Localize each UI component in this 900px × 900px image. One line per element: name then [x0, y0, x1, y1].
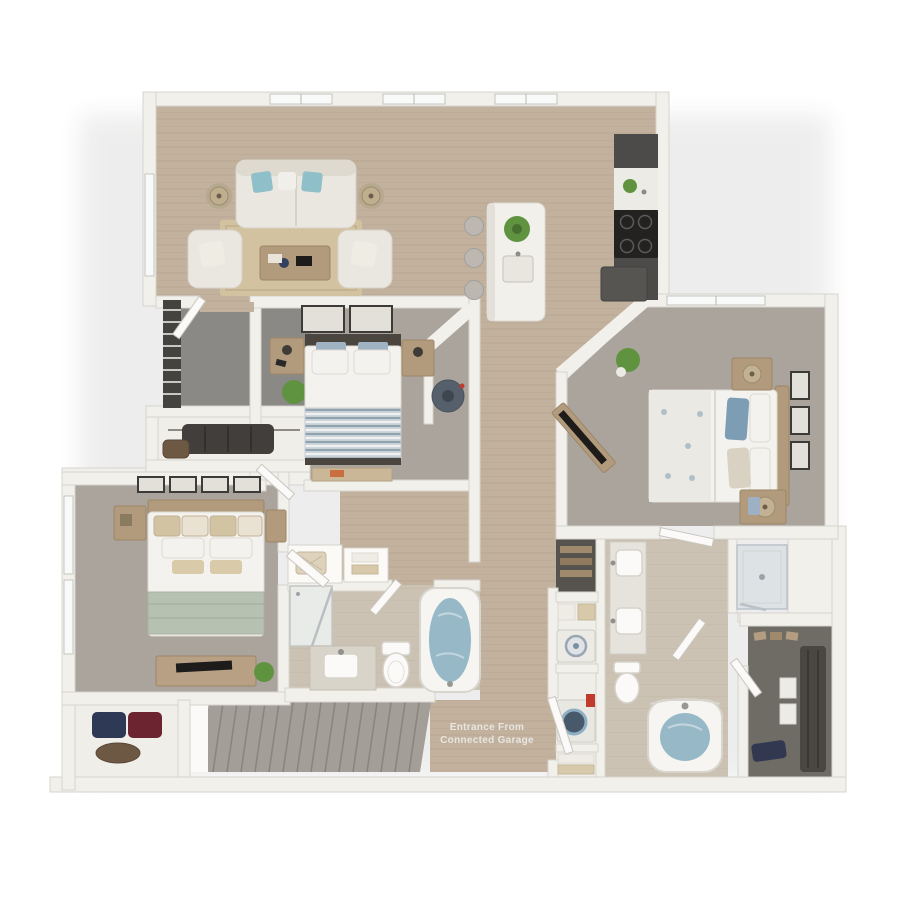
- window-icon: [64, 580, 73, 654]
- shoes: [754, 631, 767, 641]
- island-faucet-icon: [516, 252, 521, 257]
- lamp-icon: [413, 347, 423, 357]
- shoe-shelf: [560, 570, 592, 577]
- wall-art: [350, 306, 392, 332]
- washer: [557, 630, 595, 662]
- floor-plan: Entrance From Connected Garage: [0, 0, 900, 900]
- bed-queen: [305, 334, 401, 465]
- towel-stack: [558, 754, 594, 763]
- cooktop: [614, 210, 658, 258]
- wall-art: [791, 442, 809, 469]
- wall-art: [170, 477, 196, 492]
- stair-gap: [190, 698, 208, 772]
- pillow: [182, 516, 208, 536]
- bar-stool: [465, 281, 484, 300]
- nightstand: [266, 510, 286, 542]
- entrance-label-line2: Connected Garage: [440, 735, 534, 746]
- duffel-bag: [96, 743, 140, 763]
- sink: [324, 654, 358, 678]
- accent-pillow: [210, 560, 242, 574]
- bed-king: [148, 500, 264, 636]
- nightstand: [270, 338, 304, 374]
- towel-stack: [352, 553, 378, 562]
- towel-stack: [558, 604, 575, 620]
- pillow: [354, 350, 390, 374]
- nightstand: [402, 340, 434, 376]
- foot-bench: [312, 468, 392, 481]
- tub-faucet-icon: [447, 681, 453, 687]
- throw-pillow: [198, 240, 226, 268]
- hanging-clothes: [800, 646, 826, 772]
- towel-stack: [352, 565, 378, 574]
- lamp-icon: [282, 345, 292, 355]
- pillow: [238, 516, 262, 536]
- toilet: [614, 662, 640, 703]
- shower: [737, 545, 787, 610]
- decor-tray: [268, 254, 282, 263]
- window-icon: [145, 174, 154, 276]
- counter-plant: [623, 179, 637, 193]
- lamp-icon: [120, 514, 132, 526]
- bar-stool: [465, 217, 484, 236]
- balcony-railing: [163, 300, 181, 408]
- vanity: [310, 646, 376, 690]
- floor-plan-canvas: Entrance From Connected Garage: [0, 0, 900, 900]
- wall-art: [202, 477, 228, 492]
- hanging-clothes: [128, 712, 162, 738]
- striped-duvet: [305, 408, 401, 458]
- shower-head-icon: [296, 592, 300, 596]
- window-icon: [64, 496, 73, 574]
- sink: [616, 550, 642, 576]
- storage-box: [780, 704, 796, 724]
- throw-pillow: [350, 240, 378, 268]
- faucet-icon: [611, 619, 616, 624]
- utility-closet: [432, 380, 465, 412]
- faucet-icon: [338, 649, 344, 655]
- double-vanity: [610, 542, 646, 654]
- bed-king: [649, 386, 789, 506]
- pillow: [210, 538, 252, 558]
- pillow: [750, 448, 770, 496]
- accent-pillow: [725, 397, 750, 440]
- pillow: [750, 394, 770, 442]
- duffel-bag: [163, 440, 189, 458]
- shoes: [786, 631, 799, 641]
- floral-duvet: [649, 390, 711, 502]
- towel-stack: [578, 604, 595, 620]
- bar-stool: [465, 249, 484, 268]
- throw-pillow: [301, 171, 323, 193]
- armchair: [188, 230, 242, 288]
- wall-art: [302, 306, 344, 332]
- potted-plant: [254, 662, 274, 682]
- hanging-clothes: [92, 712, 126, 738]
- wall-art: [791, 372, 809, 399]
- throw-pillow: [251, 171, 274, 194]
- towel-stack: [558, 765, 594, 774]
- wall-art: [791, 407, 809, 434]
- shoe-shelf: [560, 546, 592, 553]
- bathtub: [420, 588, 480, 692]
- entrance-label-line1: Entrance From: [450, 722, 524, 733]
- sofa: [236, 160, 356, 228]
- wall-art: [234, 477, 260, 492]
- footboard: [305, 458, 401, 465]
- kitchen-faucet-icon: [642, 190, 647, 195]
- refrigerator: [601, 267, 647, 301]
- bench-decor: [330, 470, 344, 477]
- headboard: [148, 500, 264, 513]
- pillow: [154, 516, 180, 536]
- balcony-plant: [282, 380, 306, 404]
- island-sink: [503, 256, 533, 282]
- valve-icon: [460, 384, 465, 389]
- shoe-closet: [560, 546, 592, 577]
- kitchen-island: [487, 203, 545, 321]
- accent-pillow: [727, 447, 752, 488]
- decor-books: [296, 256, 312, 266]
- detergent-box: [586, 694, 595, 707]
- tv-console: [156, 656, 256, 686]
- wall-art: [138, 477, 164, 492]
- pillow: [312, 350, 348, 374]
- throw-pillow: [278, 172, 296, 190]
- armchair: [338, 230, 392, 288]
- tub-faucet-icon: [682, 703, 689, 710]
- staircase: [190, 696, 432, 772]
- pillow: [162, 538, 204, 558]
- accent-pillow: [172, 560, 204, 574]
- drain-icon: [759, 574, 765, 580]
- pillow: [210, 516, 236, 536]
- shoes: [770, 632, 782, 640]
- tablet-icon: [748, 497, 760, 515]
- sink: [616, 608, 642, 634]
- toilet: [382, 642, 410, 687]
- balcony-threshold: [200, 302, 254, 312]
- faucet-icon: [611, 561, 616, 566]
- shoe-shelf: [560, 558, 592, 565]
- coffee-table: [260, 246, 330, 280]
- soaking-tub: [648, 699, 722, 772]
- shower: [290, 586, 332, 646]
- storage-box: [780, 678, 796, 698]
- sage-duvet: [148, 592, 264, 634]
